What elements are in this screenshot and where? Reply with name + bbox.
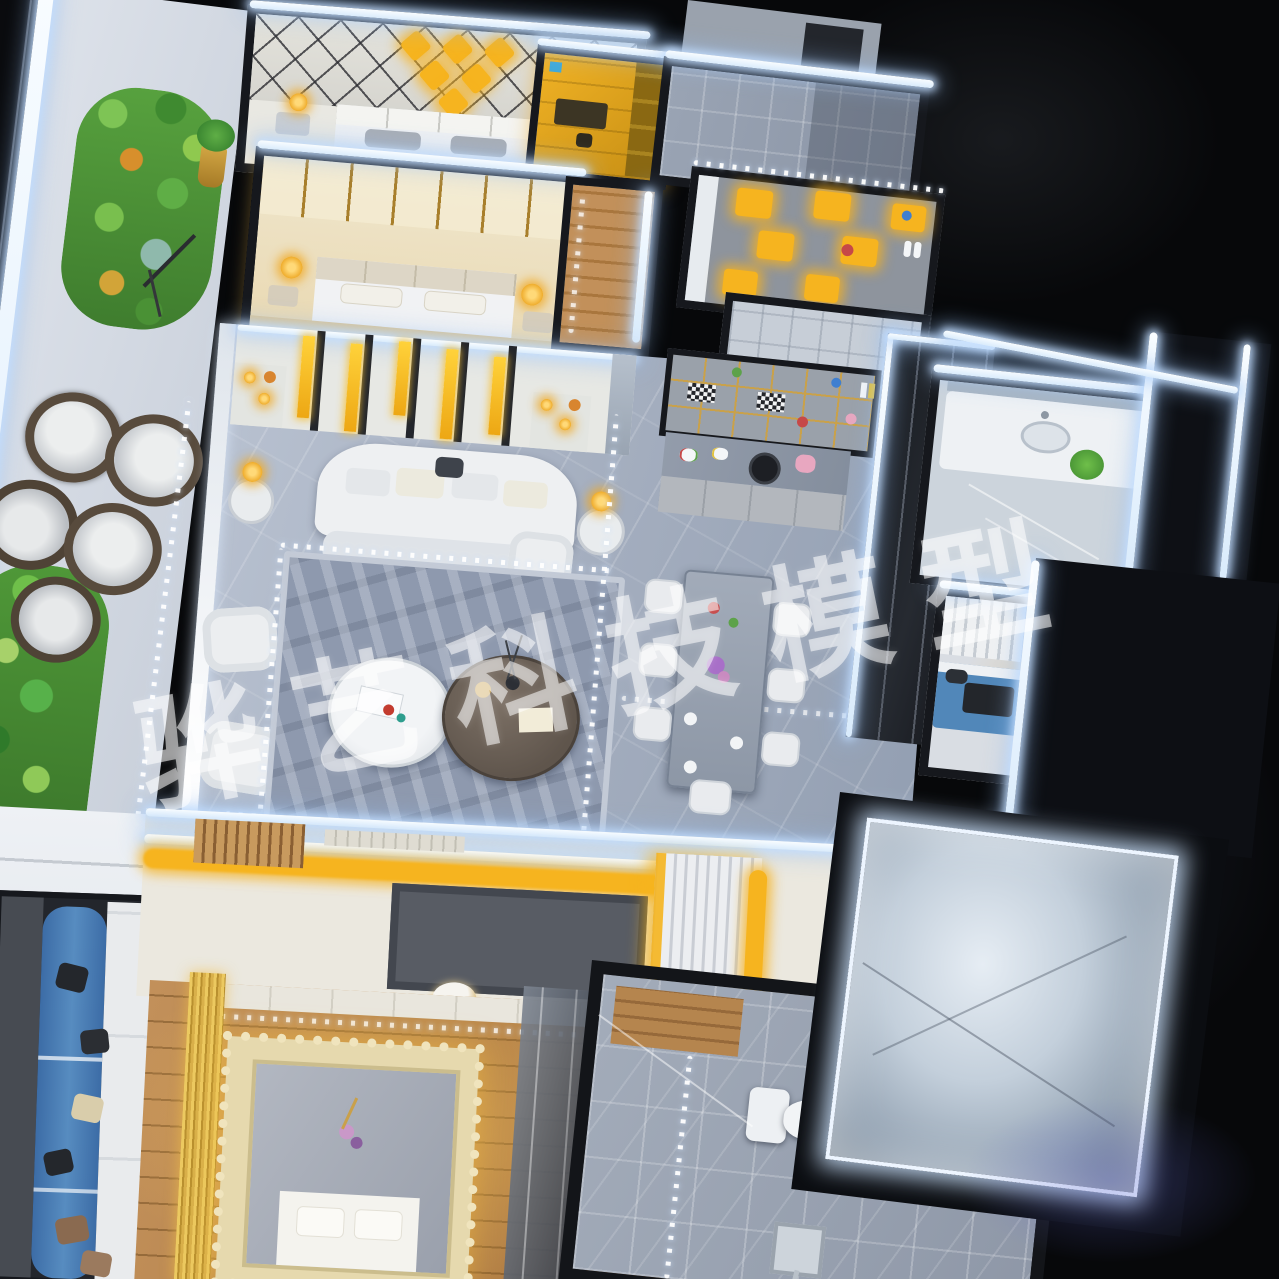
lightbox-glass (825, 817, 1179, 1197)
pillow (450, 135, 507, 157)
pillow-brown (54, 1214, 90, 1245)
black-pan (747, 451, 782, 486)
wood-shelf (610, 986, 743, 1057)
wall-ledge (685, 175, 719, 302)
side-table (226, 476, 275, 525)
pillow-dark (945, 668, 968, 684)
side-table (575, 506, 627, 558)
niche-light (540, 398, 553, 411)
glass-partition (605, 354, 637, 456)
shelf-bottles (903, 241, 912, 258)
nightstand (267, 285, 299, 308)
backlit-niche (735, 187, 774, 219)
desk (554, 98, 608, 129)
shower-handle (785, 1270, 800, 1279)
flower-orange (568, 399, 581, 412)
chair (575, 133, 592, 149)
dining-chair (688, 779, 733, 817)
food-plate (711, 447, 728, 461)
backlit-niche (804, 274, 841, 304)
pillow (340, 283, 404, 308)
niche-light (243, 371, 256, 384)
nightstand (275, 112, 311, 137)
pillow (345, 467, 391, 496)
pillow (364, 129, 421, 151)
dining-chair (760, 731, 801, 768)
bedside-lamp (289, 93, 308, 112)
flower-orange (263, 371, 276, 384)
pendant-lamp (520, 283, 544, 307)
reflection-line (862, 962, 1115, 1127)
pillow-brown (79, 1249, 113, 1278)
led-strip (632, 191, 653, 343)
backlit-niche (756, 230, 795, 262)
pillow (423, 290, 487, 315)
wood-slat-panel (193, 819, 305, 869)
model-photo-scene: 骅艺科技模型 (0, 0, 1279, 1279)
plate (730, 736, 744, 750)
led-dot-strip (568, 193, 585, 333)
decor-item (796, 416, 808, 428)
pillow-dark (435, 456, 464, 478)
decor-item (731, 367, 742, 378)
checker-dishrack (756, 392, 786, 413)
food-plate (679, 448, 698, 463)
shower-fitting (769, 1222, 826, 1279)
bolster-tie (38, 1056, 102, 1062)
hallway-wood (551, 176, 664, 358)
pillow-dark (80, 1028, 110, 1055)
glass-highlight (521, 987, 544, 1279)
plate (683, 760, 697, 774)
niche-light (559, 418, 572, 431)
nightstand (522, 311, 554, 334)
shelf-bottles (913, 242, 922, 259)
canopy-bed-lace (215, 1036, 480, 1279)
pillow (354, 1209, 404, 1241)
books (868, 383, 876, 399)
pink-pot (795, 454, 817, 474)
canopy-panel (242, 1059, 461, 1278)
led-dot-strip (664, 1056, 692, 1279)
niche-light (258, 392, 271, 405)
decor-item (831, 377, 842, 388)
bed-white (276, 1191, 420, 1272)
books (860, 382, 868, 398)
lightbox-bottom-right (791, 792, 1229, 1237)
storage-box (549, 61, 562, 72)
pendant-lamp (280, 256, 304, 280)
pillow (503, 480, 549, 509)
flower-ornament (350, 1137, 363, 1150)
backlit-niche (813, 190, 852, 222)
decor-item (845, 413, 857, 425)
shelf-niche (230, 362, 287, 428)
blanket-dark (962, 682, 1015, 717)
checker-dishrack (687, 382, 717, 403)
shelf-niche (529, 392, 591, 452)
bolster-tie (34, 1187, 98, 1193)
pillow (296, 1206, 346, 1238)
